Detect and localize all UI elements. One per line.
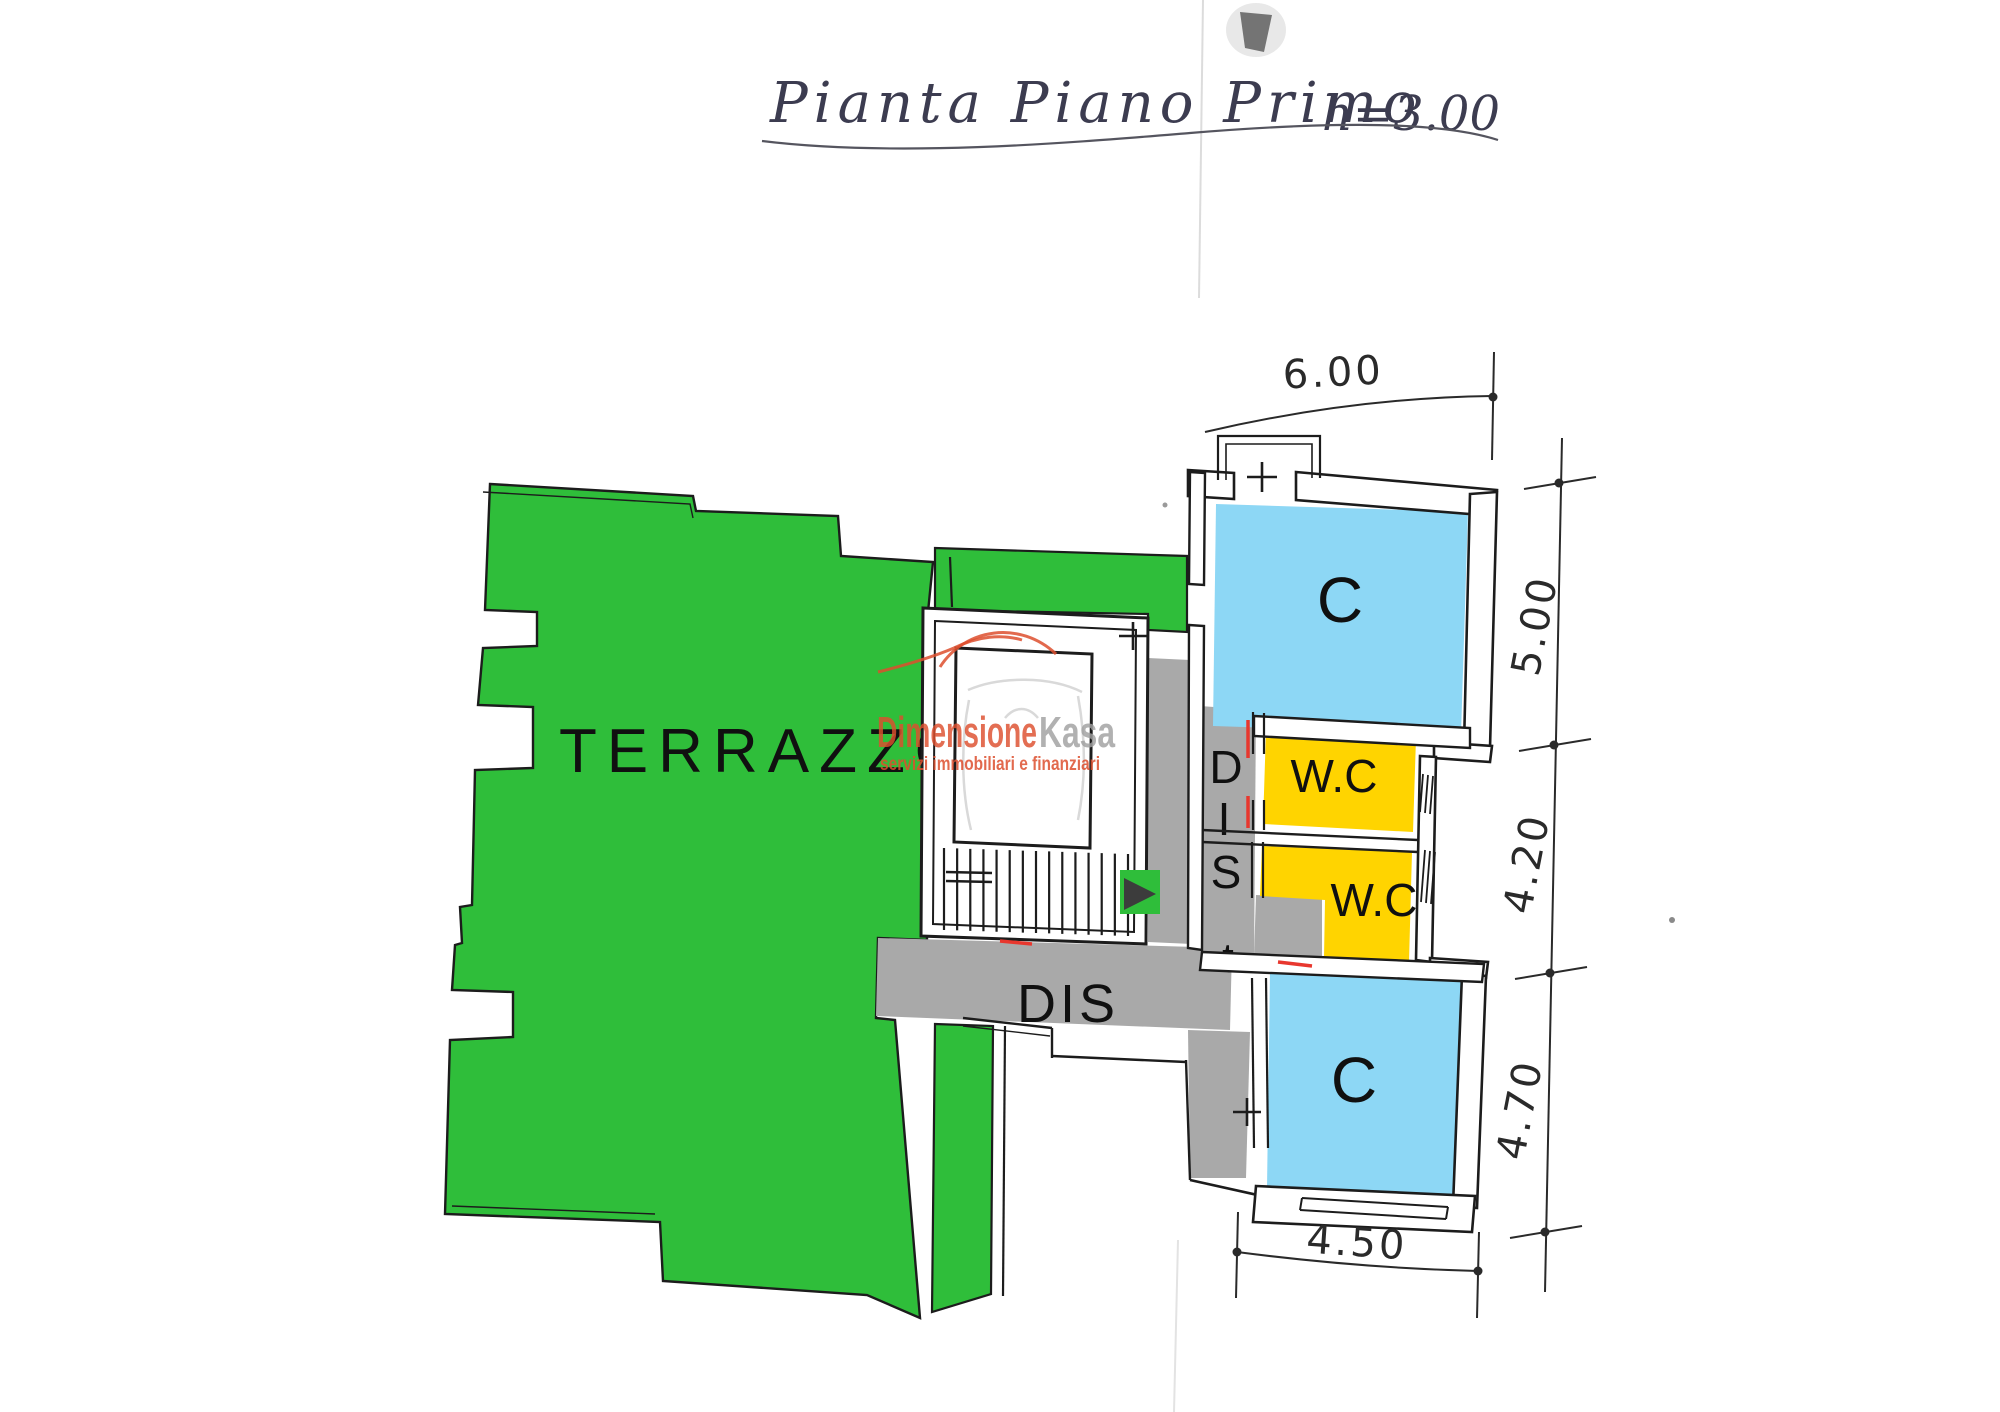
camera-top-label: C: [1317, 564, 1363, 636]
logo-brand-secondary: Kasa: [1039, 708, 1115, 757]
logo-brand-primary: Dimensione: [877, 708, 1037, 757]
camera-bottom-label: C: [1331, 1044, 1377, 1116]
stair-handrail: [946, 872, 992, 873]
stair-handrail: [946, 881, 992, 882]
scan-speck: [1163, 503, 1168, 508]
dim-top-width: 6.00: [1282, 347, 1385, 398]
dis-letter-s: S: [1211, 846, 1242, 898]
wc-top-label: W.C: [1291, 750, 1378, 802]
stairwell: [921, 608, 1160, 944]
dis-letter-i: I: [1218, 793, 1231, 845]
scan-speck: [1669, 917, 1675, 923]
terrace-strip-right-of-channel: [932, 1024, 993, 1312]
dim-right-bottom: 4.70: [1488, 1056, 1552, 1164]
terrace-main: [445, 484, 933, 1318]
corridor-lower-leg: [1188, 1030, 1250, 1178]
plus-icon: [1247, 462, 1277, 492]
scanned-floorplan-page: Pianta Piano Primo h=3.00 TERRAZZO DIS D…: [0, 0, 2000, 1412]
floorplan-drawing: Pianta Piano Primo h=3.00 TERRAZZO DIS D…: [0, 0, 2000, 1412]
plan-title-group: Pianta Piano Primo h=3.00: [762, 71, 1500, 148]
dim-right-middle: 4.20: [1495, 810, 1559, 918]
dis-letter-d: D: [1209, 741, 1242, 793]
dim-bottom-width: 4.50: [1305, 1217, 1409, 1270]
corridor-wc-notch: [1254, 895, 1322, 958]
wc-bottom-label: W.C: [1331, 874, 1418, 926]
logo-tagline: servizi immobiliari e finanziari: [880, 754, 1100, 775]
